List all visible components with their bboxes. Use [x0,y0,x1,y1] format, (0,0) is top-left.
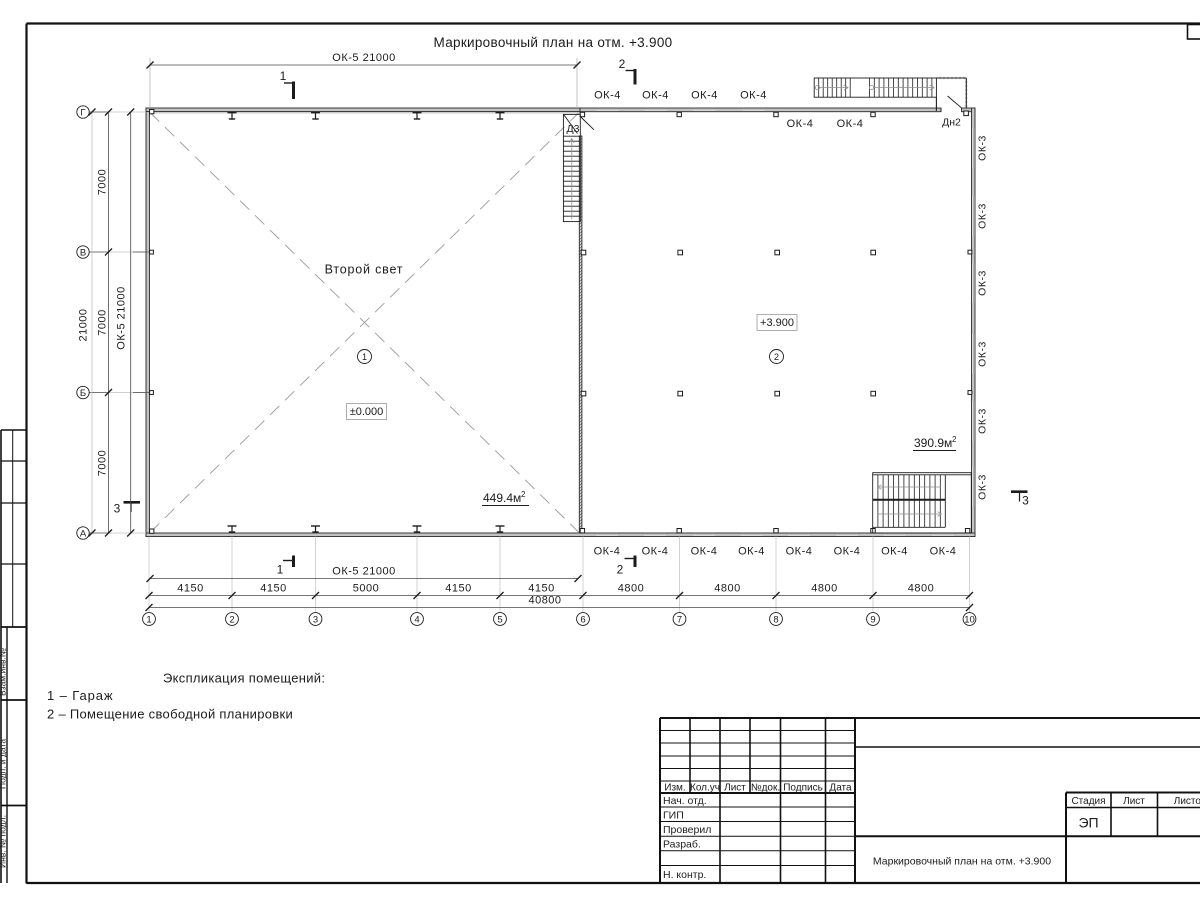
svg-text:1: 1 [362,352,367,362]
svg-text:ОК-4: ОК-4 [837,118,864,130]
svg-text:Г: Г [80,107,85,118]
svg-text:А: А [80,528,87,539]
svg-text:3: 3 [1022,494,1029,508]
svg-text:4150: 4150 [177,583,203,595]
svg-text:ЭП: ЭП [1078,815,1098,831]
svg-text:Проверил: Проверил [663,824,711,836]
svg-text:Кол.уч: Кол.уч [690,783,720,794]
svg-text:4: 4 [414,614,419,625]
svg-text:ОК-3: ОК-3 [977,341,989,367]
svg-text:ОК-4: ОК-4 [787,118,814,130]
svg-text:Второй свет: Второй свет [325,263,404,277]
svg-text:449.4м: 449.4м [483,491,521,505]
svg-text:Нач. отд.: Нач. отд. [663,795,707,807]
svg-text:Листов: Листов [1174,796,1200,807]
svg-text:4150: 4150 [528,583,554,595]
svg-text:2: 2 [521,490,526,499]
svg-text:ОК-4: ОК-4 [691,90,718,102]
svg-text:ОК-4: ОК-4 [881,546,908,558]
svg-text:ОК-4: ОК-4 [834,546,861,558]
svg-text:Дн2: Дн2 [942,117,961,129]
svg-text:2: 2 [952,435,957,444]
svg-text:Лист: Лист [1123,796,1145,807]
svg-text:ОК-5 21000: ОК-5 21000 [332,52,395,64]
svg-text:7000: 7000 [97,169,109,195]
svg-text:Дата: Дата [829,783,852,794]
svg-text:Разраб.: Разраб. [663,839,701,851]
svg-text:В: В [80,247,86,258]
svg-text:ОК-4: ОК-4 [642,90,669,102]
svg-text:3: 3 [114,502,121,516]
svg-text:Подп. и дата: Подп. и дата [0,739,8,789]
svg-text:Б: Б [80,388,86,399]
svg-text:ОК-4: ОК-4 [594,90,621,102]
svg-text:Взам.инв.№: Взам.инв.№ [0,648,8,696]
svg-text:4800: 4800 [908,583,934,595]
svg-text:ГИП: ГИП [663,810,684,822]
svg-text:7: 7 [677,614,682,625]
svg-text:2: 2 [229,614,234,625]
svg-text:4800: 4800 [811,583,837,595]
svg-text:Подпись: Подпись [783,783,823,794]
svg-text:2: 2 [617,563,624,577]
svg-text:ОК-4: ОК-4 [594,546,621,558]
svg-text:ОК-3: ОК-3 [977,408,989,434]
svg-text:6: 6 [580,614,585,625]
svg-text:2 – Помещение свободной планир: 2 – Помещение свободной планировки [47,707,293,722]
svg-text:390.9м: 390.9м [914,436,952,450]
svg-text:Лист: Лист [724,783,746,794]
svg-text:ОК-4: ОК-4 [642,546,669,558]
svg-text:21000: 21000 [78,308,90,341]
svg-text:Инв. № подл.: Инв. № подл. [0,815,8,868]
svg-text:5000: 5000 [353,583,379,595]
svg-text:ОК-3: ОК-3 [977,203,989,229]
svg-text:4150: 4150 [260,583,286,595]
svg-text:2: 2 [619,57,626,71]
svg-text:9: 9 [870,614,875,625]
svg-text:4800: 4800 [714,583,740,595]
svg-text:5: 5 [497,614,502,625]
svg-text:7000: 7000 [97,450,109,476]
svg-text:ОК-5 21000: ОК-5 21000 [116,286,128,349]
svg-text:Стадия: Стадия [1071,796,1105,807]
svg-text:Изм.: Изм. [664,783,685,794]
svg-text:ОК-4: ОК-4 [691,546,718,558]
svg-text:ОК-4: ОК-4 [930,546,957,558]
svg-text:±0.000: ±0.000 [350,406,384,418]
svg-text:1 – Гараж: 1 – Гараж [47,688,113,703]
svg-text:ОК-3: ОК-3 [977,270,989,296]
svg-text:4800: 4800 [618,583,644,595]
svg-text:1: 1 [146,614,151,625]
svg-text:Маркировочный план на отм. +3.: Маркировочный план на отм. +3.900 [434,35,673,50]
svg-text:Маркировочный план на отм. +3.: Маркировочный план на отм. +3.900 [873,856,1051,868]
svg-text:4150: 4150 [445,583,471,595]
svg-text:ОК-4: ОК-4 [786,546,813,558]
svg-text:№док.: №док. [751,783,780,794]
svg-text:ОК-3: ОК-3 [977,474,989,500]
svg-text:ОК-4: ОК-4 [740,90,767,102]
svg-text:ОК-3: ОК-3 [977,135,989,161]
svg-text:10: 10 [964,614,975,625]
svg-text:2: 2 [774,352,779,362]
svg-text:Д3: Д3 [567,123,580,135]
svg-text:Экспликация помещений:: Экспликация помещений: [163,671,325,686]
svg-text:1: 1 [277,563,284,577]
svg-text:8: 8 [773,614,778,625]
svg-text:1: 1 [280,69,287,83]
svg-text:ОК-5 21000: ОК-5 21000 [332,566,395,578]
svg-text:+3.900: +3.900 [760,317,794,329]
svg-text:ОК-4: ОК-4 [738,546,765,558]
svg-text:7000: 7000 [97,309,109,335]
svg-text:3: 3 [313,614,318,625]
svg-text:40800: 40800 [528,595,561,607]
svg-text:Н. контр.: Н. контр. [663,869,706,881]
